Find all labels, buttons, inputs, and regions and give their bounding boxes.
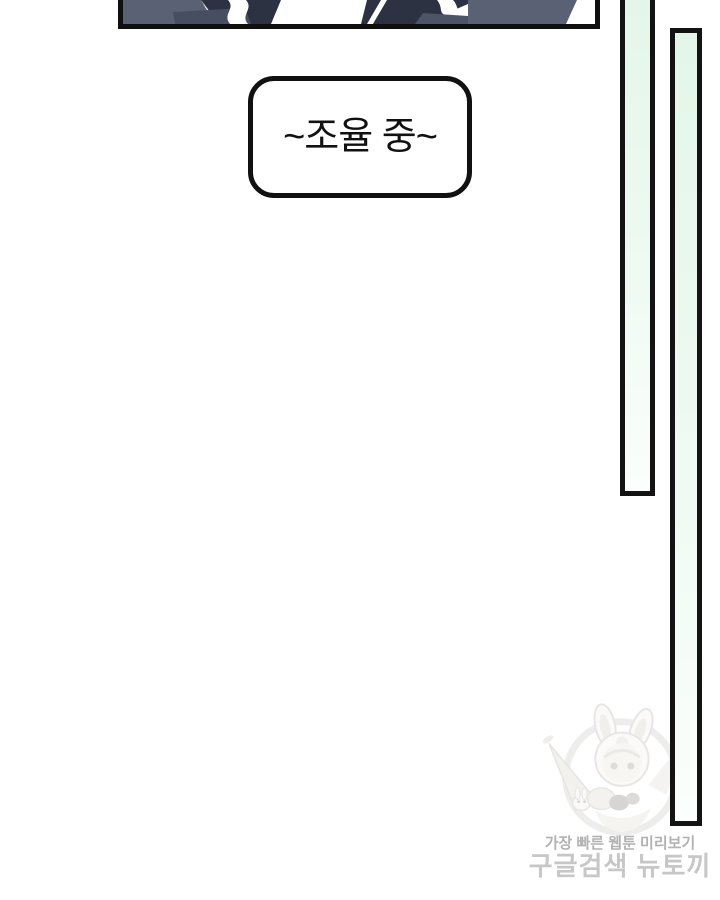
decor-bar-right — [670, 28, 702, 826]
panel-shape-slate-right — [468, 0, 577, 24]
watermark-sitename: 구글검색 뉴토끼 — [510, 846, 720, 883]
panel-artwork — [123, 0, 595, 24]
decor-bar-left — [620, 0, 655, 496]
panel-shape-white-curve-left — [227, 0, 248, 24]
webtoon-page: ~조율 중~ — [0, 0, 720, 900]
comic-panel — [118, 0, 600, 29]
speech-bubble: ~조율 중~ — [248, 76, 472, 198]
speech-bubble-text: ~조율 중~ — [283, 118, 437, 156]
